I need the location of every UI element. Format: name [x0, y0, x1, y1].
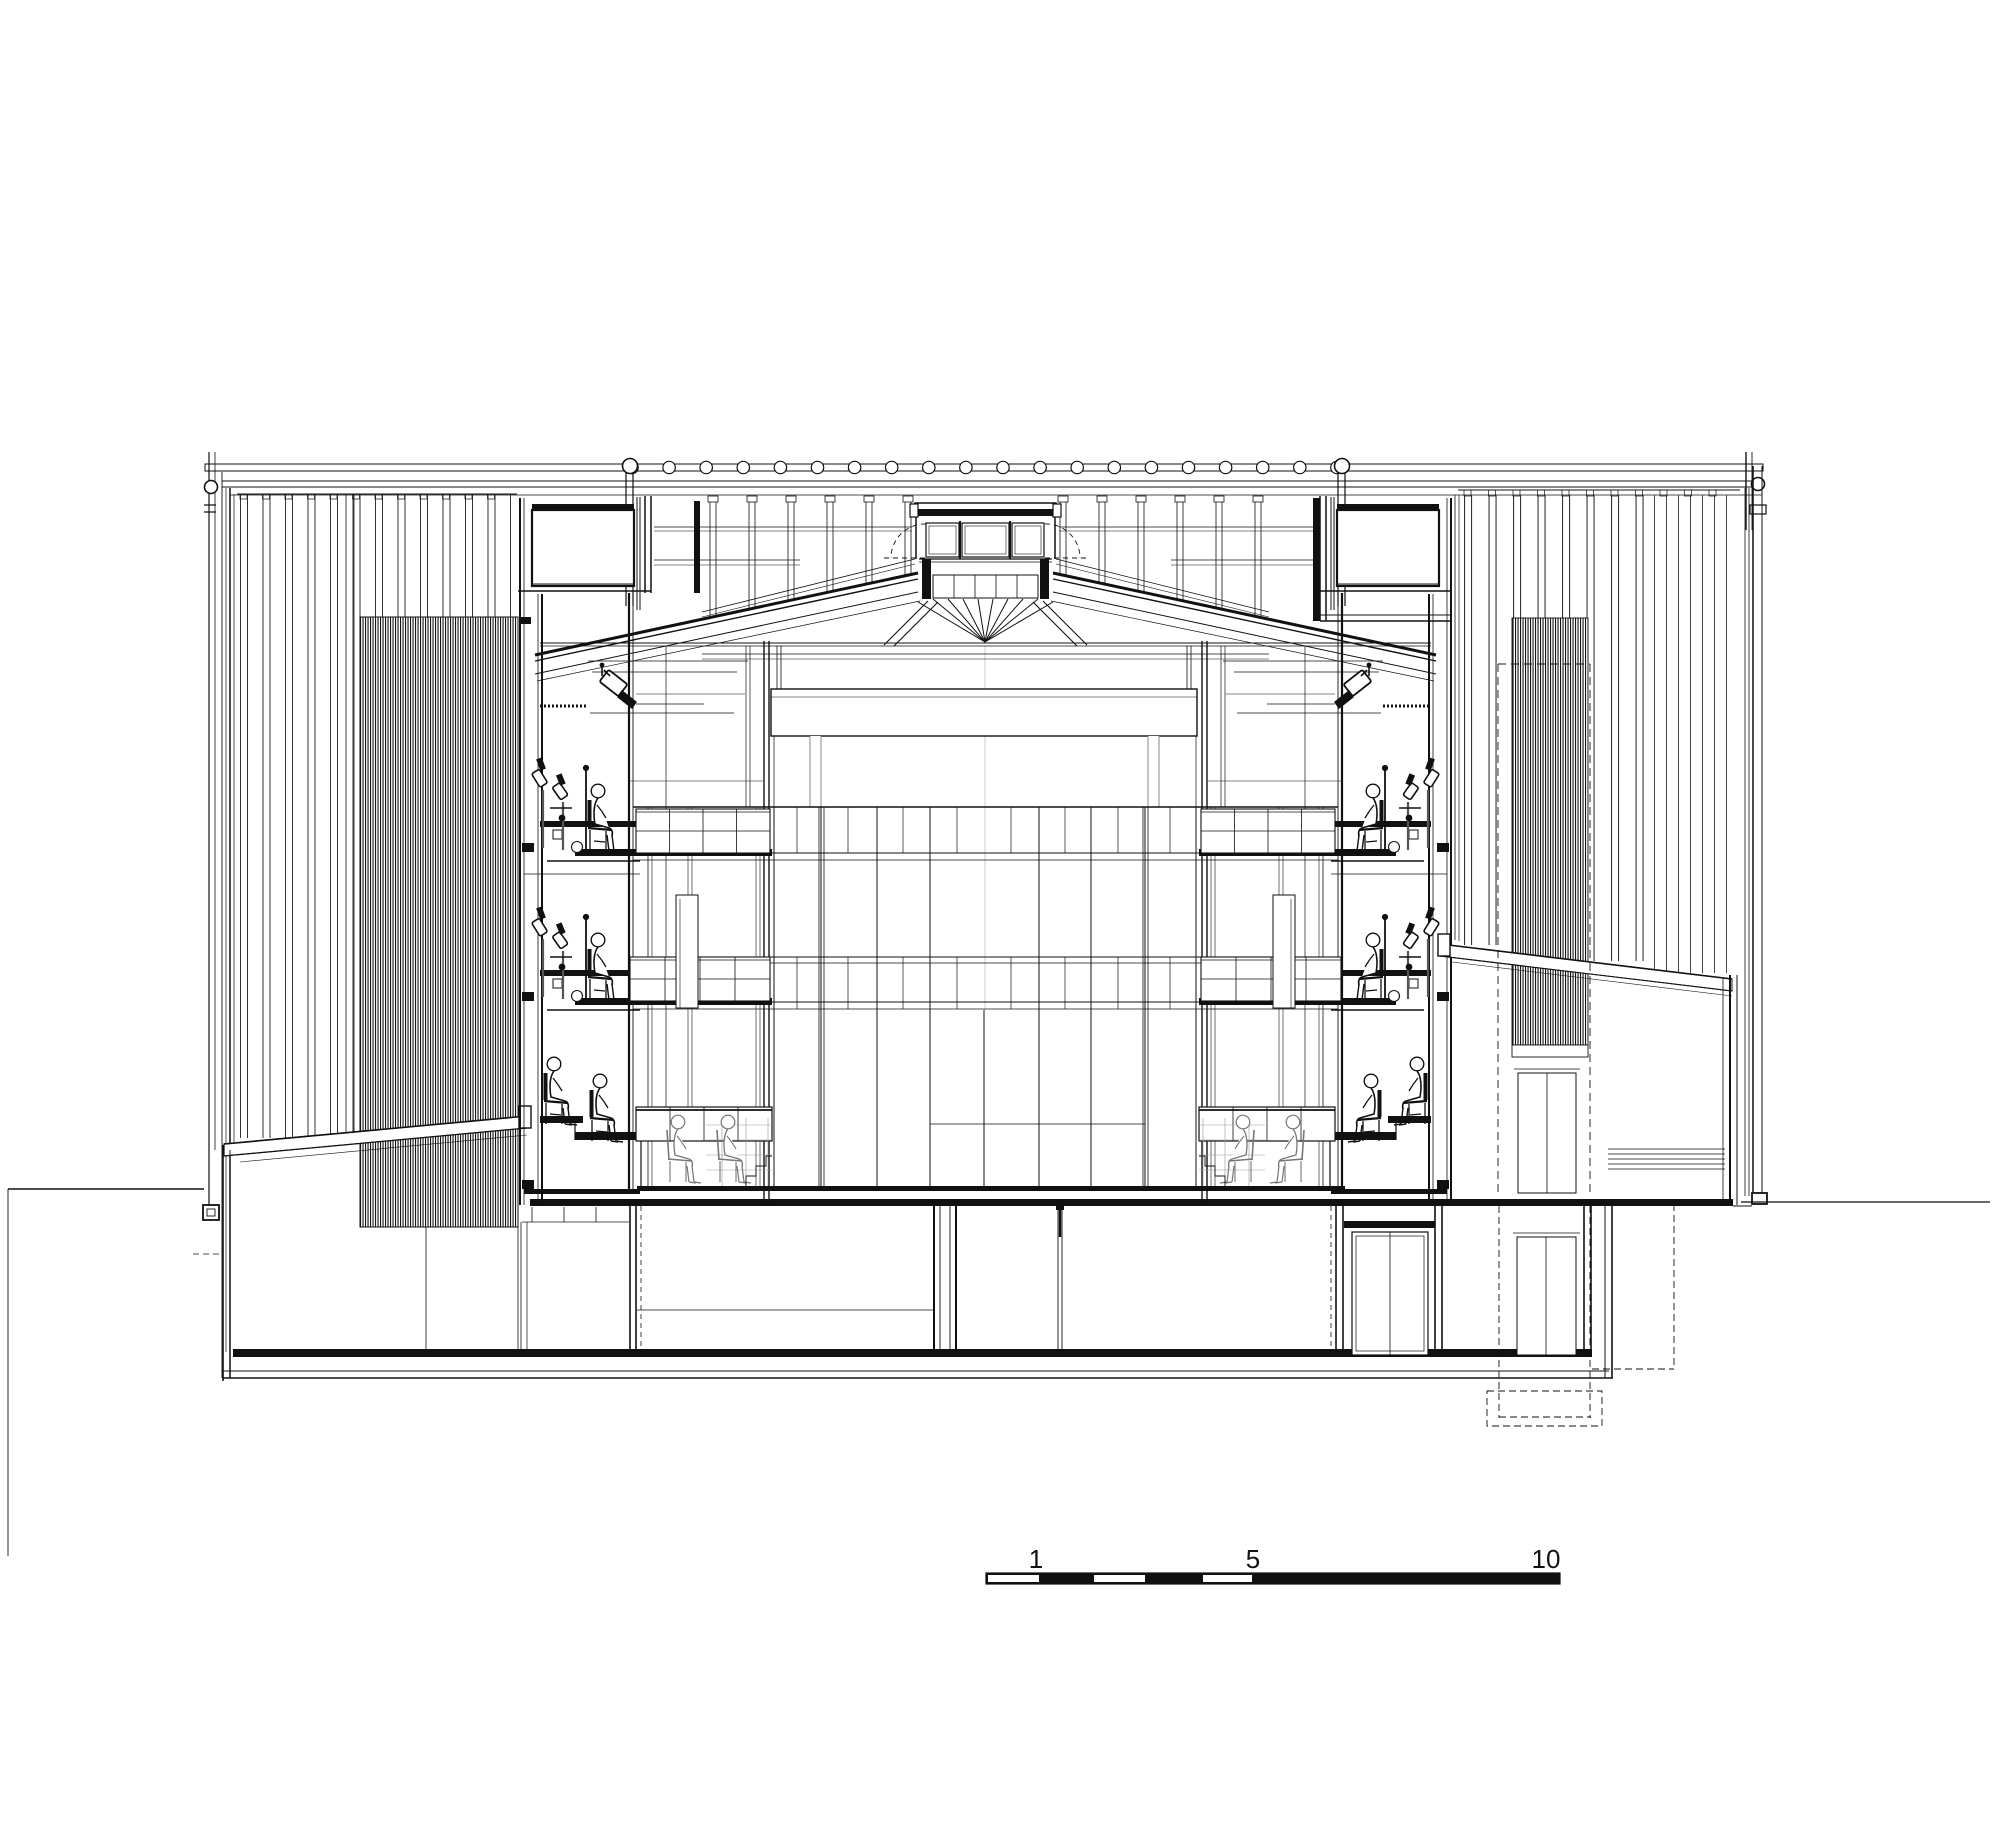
svg-text:5: 5 [1246, 1544, 1260, 1574]
svg-text:10: 10 [1532, 1544, 1561, 1574]
svg-text:1: 1 [1029, 1544, 1043, 1574]
